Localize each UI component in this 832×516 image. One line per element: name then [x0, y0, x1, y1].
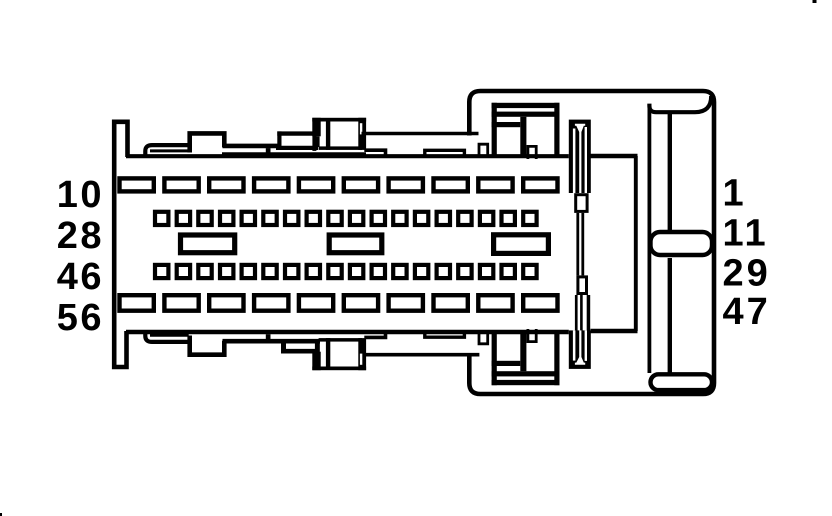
svg-text:28: 28: [57, 215, 104, 257]
svg-text:1: 1: [723, 173, 747, 215]
svg-text:47: 47: [723, 291, 771, 333]
svg-text:46: 46: [57, 256, 104, 298]
svg-text:11: 11: [723, 213, 769, 255]
svg-text:10: 10: [57, 174, 104, 216]
svg-text:56: 56: [57, 297, 104, 339]
svg-text:29: 29: [723, 253, 771, 295]
